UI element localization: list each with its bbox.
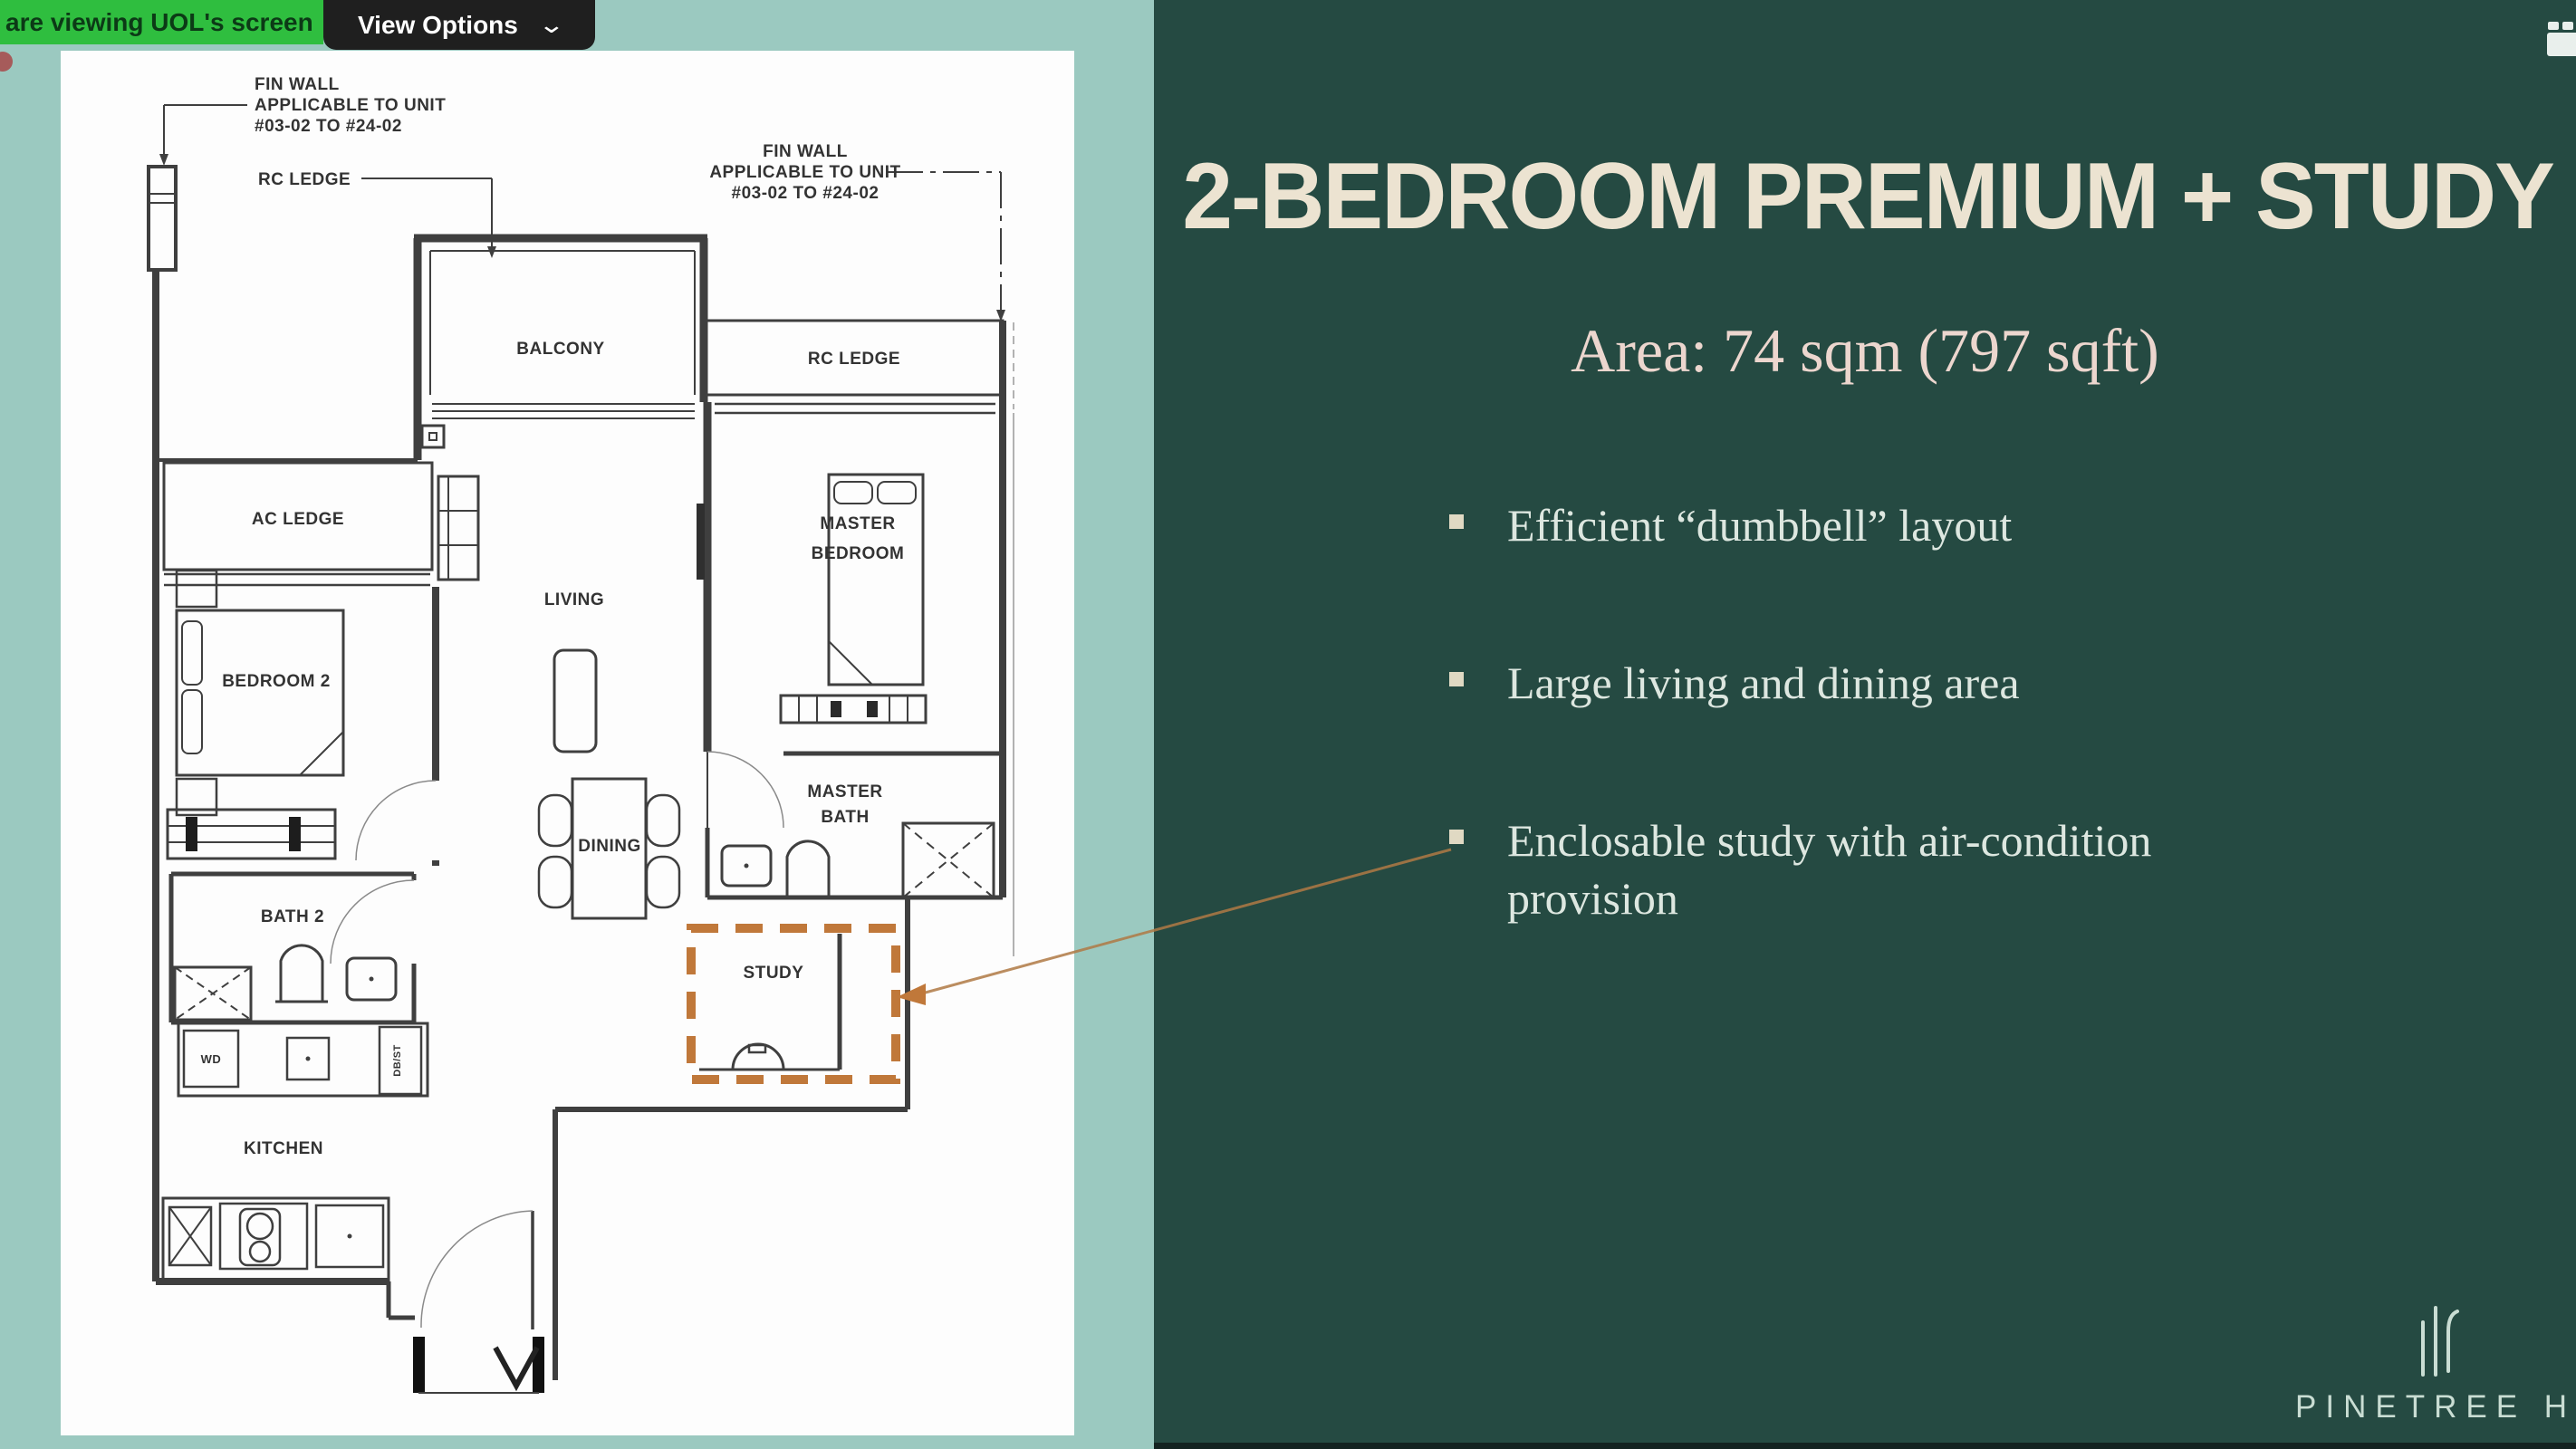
label-kitchen: KITCHEN bbox=[244, 1139, 323, 1158]
floor-plan-svg: FIN WALL APPLICABLE TO UNIT #03-02 TO #2… bbox=[61, 51, 1074, 1435]
svg-text:#03-02 TO #24-02: #03-02 TO #24-02 bbox=[732, 184, 879, 203]
label-wd: WD bbox=[201, 1052, 222, 1066]
label-bedroom-2: BEDROOM 2 bbox=[222, 672, 331, 691]
slide-right-panel: 2-BEDROOM PREMIUM + STUDY Area: 74 sqm (… bbox=[1154, 0, 2576, 1449]
study-highlight-box bbox=[691, 928, 896, 1080]
pine-trees-icon bbox=[2407, 1304, 2465, 1378]
label-fin-wall-left: FIN WALL bbox=[255, 75, 340, 94]
label-master-bedroom: MASTER bbox=[820, 514, 895, 533]
label-rc-ledge-left: RC LEDGE bbox=[258, 170, 351, 189]
bullet-square-icon bbox=[1449, 514, 1464, 529]
pinetree-hill-logo: PINETREE HILL bbox=[2295, 1304, 2576, 1425]
svg-text:#03-02 TO #24-02: #03-02 TO #24-02 bbox=[255, 117, 402, 136]
logo-wordmark: PINETREE HILL bbox=[2295, 1389, 2576, 1425]
label-study: STUDY bbox=[744, 964, 804, 983]
view-options-button[interactable]: View Options ⌄ bbox=[323, 0, 595, 50]
slide-area-text: Area: 74 sqm (797 sqft) bbox=[1154, 315, 2576, 387]
label-bath-2: BATH 2 bbox=[261, 907, 324, 926]
screen-share-banner: are viewing UOL's screen bbox=[0, 0, 323, 44]
bullet-text: Enclosable study with air-condition prov… bbox=[1507, 811, 2259, 927]
slide-title: 2-BEDROOM PREMIUM + STUDY bbox=[1182, 143, 2547, 251]
label-balcony: BALCONY bbox=[516, 340, 604, 359]
bullet-item: Enclosable study with air-condition prov… bbox=[1449, 811, 2259, 927]
label-rc-ledge-right: RC LEDGE bbox=[808, 350, 900, 369]
svg-text:BEDROOM: BEDROOM bbox=[812, 544, 905, 563]
bullet-text: Large living and dining area bbox=[1507, 654, 2020, 712]
label-ac-ledge: AC LEDGE bbox=[252, 510, 344, 529]
chevron-down-icon: ⌄ bbox=[538, 11, 566, 39]
view-options-label: View Options bbox=[358, 11, 518, 40]
svg-text:APPLICABLE TO UNIT: APPLICABLE TO UNIT bbox=[255, 96, 446, 115]
svg-text:BATH: BATH bbox=[821, 808, 869, 827]
participant-avatar-fragment bbox=[0, 52, 13, 72]
label-dining: DINING bbox=[578, 837, 641, 856]
bullet-item: Efficient “dumbbell” layout bbox=[1449, 496, 2012, 554]
label-db-st: DB/ST bbox=[392, 1044, 403, 1077]
label-fin-wall-right: FIN WALL bbox=[763, 142, 848, 161]
bullet-square-icon bbox=[1449, 830, 1464, 844]
bullet-square-icon bbox=[1449, 672, 1464, 686]
screen-share-banner-text: are viewing UOL's screen bbox=[5, 8, 313, 37]
label-living: LIVING bbox=[544, 590, 604, 609]
floor-plan-page: FIN WALL APPLICABLE TO UNIT #03-02 TO #2… bbox=[61, 51, 1074, 1435]
panel-bottom-strip bbox=[1154, 1443, 2576, 1449]
bullet-text: Efficient “dumbbell” layout bbox=[1507, 496, 2012, 554]
label-master-bath: MASTER bbox=[807, 782, 882, 801]
video-app-icon[interactable] bbox=[2547, 22, 2576, 58]
bullet-item: Large living and dining area bbox=[1449, 654, 2020, 712]
svg-text:APPLICABLE TO UNIT: APPLICABLE TO UNIT bbox=[709, 163, 900, 182]
